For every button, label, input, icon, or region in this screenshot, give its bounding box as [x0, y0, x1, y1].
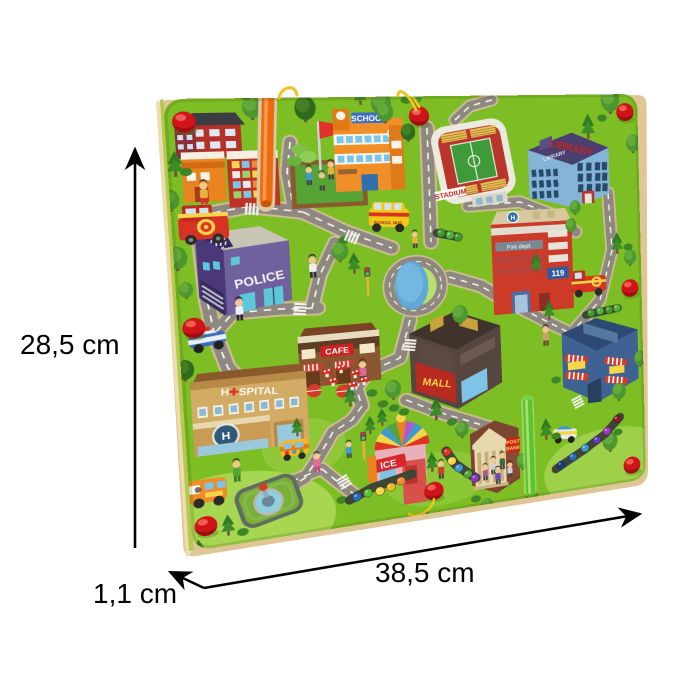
- svg-text:1,1 cm: 1,1 cm: [93, 578, 177, 609]
- svg-text:28,5 cm: 28,5 cm: [20, 329, 120, 360]
- svg-text:38,5 cm: 38,5 cm: [375, 557, 475, 588]
